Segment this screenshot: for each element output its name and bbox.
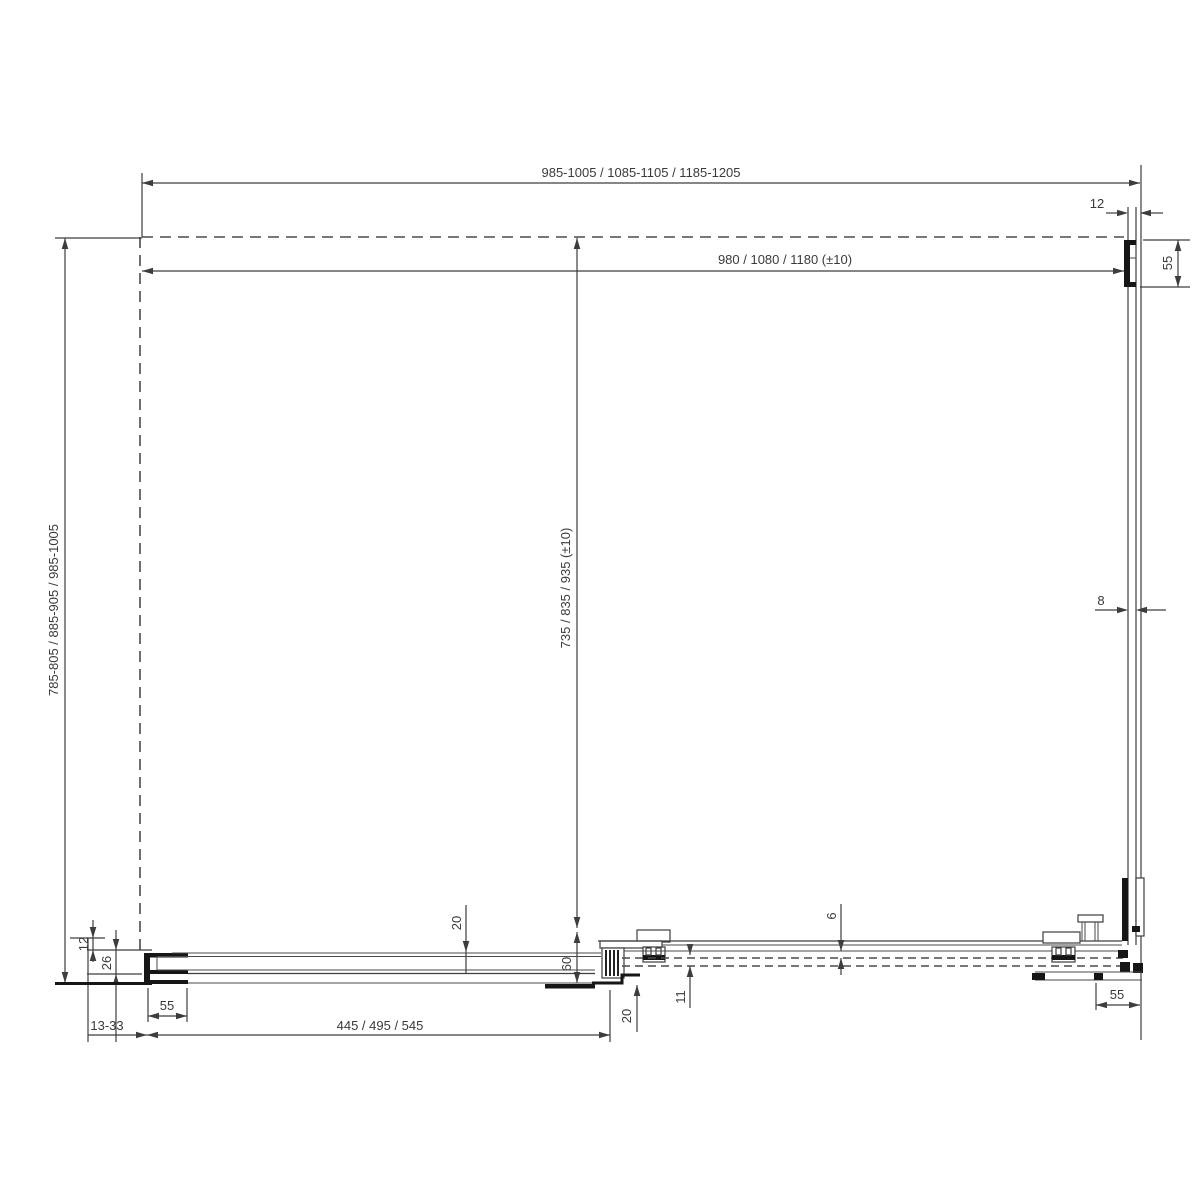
door-depth-label: 735 / 835 / 935 (±10) xyxy=(558,528,573,649)
arrow-left-445 xyxy=(147,1032,158,1039)
dim-top-right-12: 12 xyxy=(1090,196,1163,216)
arrow-up xyxy=(1175,240,1182,251)
arrow-right xyxy=(1117,210,1128,217)
bottom-fixed-glass xyxy=(157,953,601,989)
dim-glass-width: 980 / 1080 / 1180 (±10) xyxy=(142,252,1124,274)
rail-depth-label: 60 xyxy=(559,957,574,971)
arrow-right-445 xyxy=(599,1032,610,1039)
dim-rail-door-gap-6: 6 xyxy=(824,904,844,975)
wall-profile-width-right-label: 55 xyxy=(1110,987,1124,1002)
dim-top-right-55: 55 xyxy=(1140,240,1190,287)
glass-width-label: 980 / 1080 / 1180 (±10) xyxy=(718,252,852,267)
arrow-right xyxy=(1117,607,1128,614)
glass-overlap-top-label: 20 xyxy=(449,916,464,930)
edge-seal-strip xyxy=(545,984,595,989)
profile-cap-top xyxy=(1124,240,1136,245)
profile-web xyxy=(1124,240,1130,287)
threshold-seal-1 xyxy=(1032,973,1045,980)
corner-profile-web xyxy=(1122,878,1128,941)
threshold-seal-2 xyxy=(1094,973,1103,980)
carriage-body xyxy=(1043,932,1080,943)
carriage-top-block xyxy=(637,930,670,942)
dim-wall-profile-width-left-55: 55 xyxy=(148,988,187,1022)
corner-block-upper xyxy=(1118,950,1128,958)
right-door-carriage xyxy=(1043,915,1103,962)
left-offset-12-label: 12 xyxy=(76,937,91,951)
arrow-up xyxy=(62,238,69,249)
dim-rail-depth-60: 60 xyxy=(559,932,580,983)
carriage-stems xyxy=(1082,922,1098,941)
door-glass-gap-label: 11 xyxy=(673,990,688,1004)
arrow-down xyxy=(62,972,69,983)
bottom-right-corner-assembly xyxy=(1032,878,1144,980)
arrow-down xyxy=(90,927,97,938)
arrow-up xyxy=(687,966,694,977)
dim-glass-overlap-top-20: 20 xyxy=(449,905,469,973)
roller-nub-2 xyxy=(1066,948,1071,955)
glass-thickness-label: 8 xyxy=(1097,593,1104,608)
dim-wall-profile-width-right-55: 55 xyxy=(1096,983,1140,1010)
arrow-left xyxy=(1096,1002,1107,1009)
top-right-wall-profile xyxy=(1124,240,1136,287)
arrow-up xyxy=(574,238,581,249)
profile-cap-bottom xyxy=(1124,282,1136,287)
corner-block-lower xyxy=(1120,962,1130,972)
arrow-up xyxy=(634,985,641,996)
wall-profile-depth-label: 55 xyxy=(1160,256,1175,270)
arrow-right-1333 xyxy=(136,1032,147,1039)
left-offset-26-label: 26 xyxy=(99,956,114,970)
arrow-left xyxy=(142,180,153,187)
right-fixed-glass-panel xyxy=(1128,207,1136,945)
adjust-range-label: 13-33 xyxy=(90,1018,123,1033)
arrow-down xyxy=(113,939,120,950)
installation-envelope-dashed-outline xyxy=(140,237,1124,953)
dim-door-depth: 735 / 835 / 935 (±10) xyxy=(558,238,580,928)
wall-profile-width-left-label: 55 xyxy=(160,998,174,1013)
glass-overlap-bottom-label: 20 xyxy=(619,1009,634,1023)
arrow-right xyxy=(1129,180,1140,187)
arrow-up xyxy=(574,932,581,943)
fixed-segment-width-label: 445 / 495 / 545 xyxy=(337,1018,424,1033)
arrow-down xyxy=(1175,276,1182,287)
dim-overall-width: 985-1005 / 1085-1105 / 1185-1205 xyxy=(142,165,1141,1040)
arrow-up xyxy=(838,958,845,969)
dim-glass-thickness-8: 8 xyxy=(1095,593,1166,613)
overall-depth-label: 785-805 / 885-905 / 985-1005 xyxy=(46,524,61,696)
arrow-down xyxy=(463,941,470,952)
rail-door-gap-label: 6 xyxy=(824,912,839,919)
overall-width-label: 985-1005 / 1085-1105 / 1185-1205 xyxy=(541,165,740,180)
arrow-right xyxy=(1113,268,1124,275)
arrow-right xyxy=(176,1013,187,1020)
sliding-door-glass-dashed xyxy=(622,958,1123,966)
profile-web xyxy=(144,953,150,984)
arrow-down xyxy=(574,917,581,928)
dim-glass-overlap-bottom-20: 20 xyxy=(619,985,640,1032)
roller-axle-bar xyxy=(1052,955,1075,960)
arrow-left xyxy=(148,1013,159,1020)
technical-drawing-canvas: 985-1005 / 1085-1105 / 1185-1205 980 / 1… xyxy=(0,0,1200,1200)
corner-profile-nub xyxy=(1132,926,1140,932)
arrow-left xyxy=(1140,210,1151,217)
carriage-cap xyxy=(1078,915,1103,922)
arrow-down xyxy=(687,944,694,955)
drawing-page: 985-1005 / 1085-1105 / 1185-1205 980 / 1… xyxy=(0,0,1200,1200)
arrow-left xyxy=(142,268,153,275)
top-right-offset-label: 12 xyxy=(1090,196,1104,211)
center-door-carriage xyxy=(592,930,670,983)
bottom-left-wall-profile xyxy=(144,953,188,984)
profile-mid-bar xyxy=(150,970,188,974)
dim-overall-depth: 785-805 / 885-905 / 985-1005 xyxy=(46,238,142,983)
roller-nub-1 xyxy=(1056,948,1061,955)
dim-door-glass-gap-11: 11 xyxy=(673,944,693,1008)
arrow-right xyxy=(1129,1002,1140,1009)
